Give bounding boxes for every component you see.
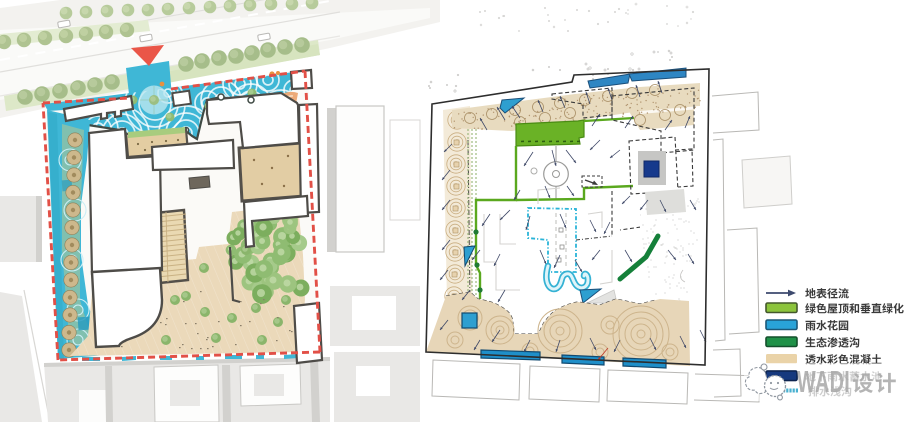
svg-text:WADI: WADI: [797, 363, 850, 399]
